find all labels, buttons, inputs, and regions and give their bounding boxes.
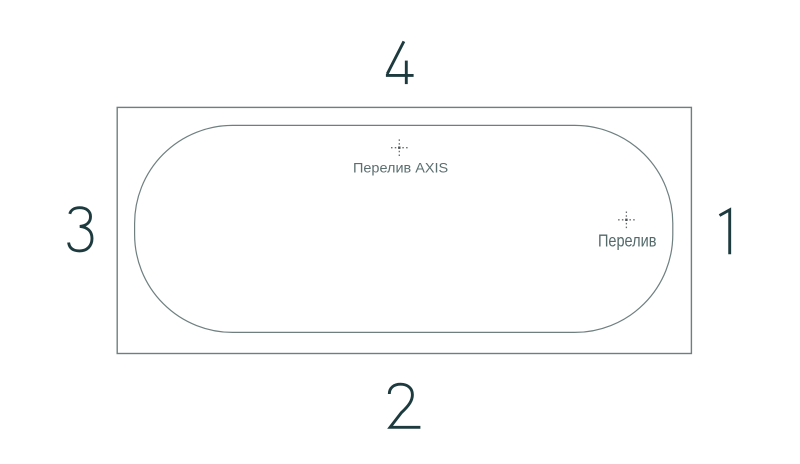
svg-text:Перелив AXIS: Перелив AXIS [353, 159, 448, 175]
svg-text:Перелив: Перелив [598, 231, 657, 251]
